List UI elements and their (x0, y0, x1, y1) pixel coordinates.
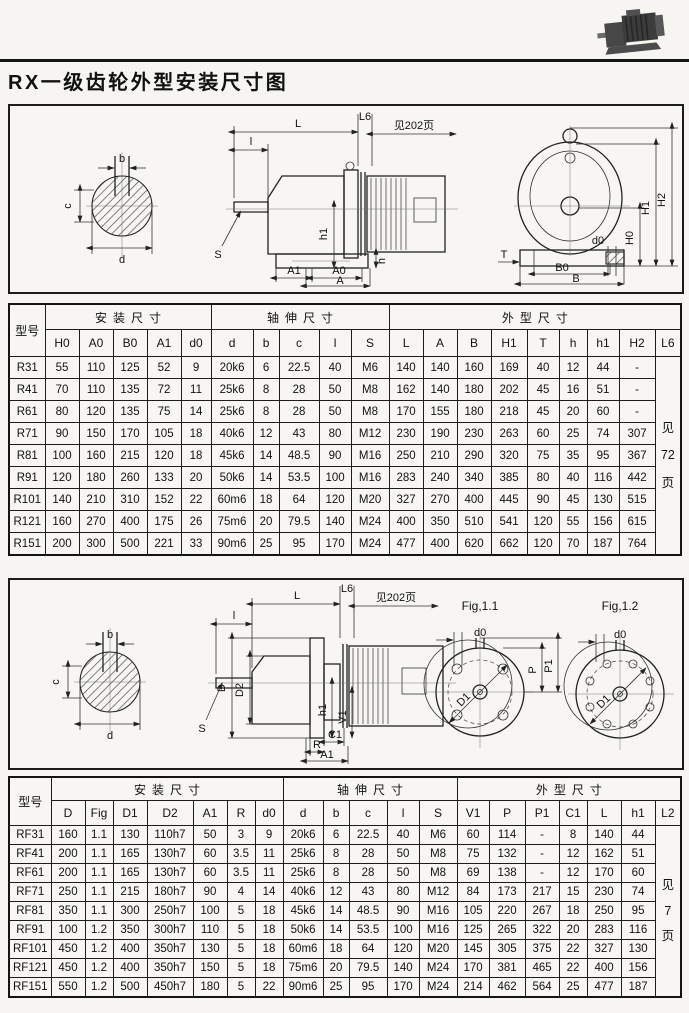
column-header: H1 (491, 330, 527, 357)
table-cell: 400 (423, 533, 457, 556)
table-cell: 6 (323, 826, 349, 845)
table-cell: 50k6 (283, 921, 323, 940)
table-row: R911201802601332050k61453.5100M162832403… (9, 467, 681, 489)
table-cell: 160 (45, 511, 79, 533)
table-cell: - (619, 357, 655, 379)
table-cell: 116 (621, 921, 655, 940)
table-cell: 217 (525, 883, 559, 902)
table-cell: 300 (79, 533, 113, 556)
table-cell: 162 (587, 845, 621, 864)
table-row: R1512003005002213390m62595170M2447740062… (9, 533, 681, 556)
table-cell: 11 (255, 845, 283, 864)
table-cell: 500 (113, 978, 147, 998)
table-cell: M8 (419, 864, 457, 883)
table-row: R315511012552920k6622.540M61401401601694… (9, 357, 681, 379)
table-cell: 1.1 (85, 826, 113, 845)
table-cell: 60 (193, 845, 227, 864)
column-header: D1 (113, 801, 147, 826)
column-group-header: 轴伸尺寸 (211, 304, 389, 330)
table-cell: 340 (457, 467, 491, 489)
table-cell: 50 (387, 845, 419, 864)
model-column-header: 型号 (9, 304, 45, 357)
dim-label-D2: D2 (234, 683, 246, 697)
table-row: R4170110135721125k682850M816214018020245… (9, 379, 681, 401)
table-cell: 1.2 (85, 978, 113, 998)
dim-label-B: B (572, 273, 579, 285)
table-cell: 400 (113, 511, 147, 533)
table-cell: 375 (525, 940, 559, 959)
table-cell: 60 (621, 864, 655, 883)
table-cell: 12 (559, 845, 587, 864)
table-cell: 11 (255, 864, 283, 883)
table-cell: 1.2 (85, 921, 113, 940)
table-cell: 564 (525, 978, 559, 998)
table-cell: 170 (389, 401, 423, 423)
table-cell: 100 (387, 921, 419, 940)
table-cell: 79.5 (349, 959, 387, 978)
table-cell: 60m6 (283, 940, 323, 959)
model-cell: RF81 (9, 902, 51, 921)
note-char: 页 (662, 930, 675, 943)
table-cell: 320 (491, 445, 527, 467)
table-cell: 11 (181, 379, 211, 401)
dim-label-P1: P1 (543, 659, 555, 672)
table-cell: 130h7 (147, 845, 193, 864)
table-cell: 64 (349, 940, 387, 959)
column-header: D (51, 801, 85, 826)
table-cell: 16 (559, 379, 587, 401)
table-cell: 260 (113, 467, 147, 489)
table-cell: 150 (79, 423, 113, 445)
table-cell: 215 (113, 883, 147, 902)
table-cell: 150 (193, 959, 227, 978)
table-cell: 175 (147, 511, 181, 533)
table-cell: 18 (181, 445, 211, 467)
table-row: R6180120135751425k682850M817015518021845… (9, 401, 681, 423)
table-cell: 620 (457, 533, 491, 556)
table-row: RF412001.1165130h7603.51125k682850M87513… (9, 845, 681, 864)
column-header: P (489, 801, 525, 826)
column-header: L2 (655, 801, 681, 826)
table-cell: M8 (351, 379, 389, 401)
table-cell: M6 (419, 826, 457, 845)
table-cell: 140 (45, 489, 79, 511)
table-cell: 25 (323, 978, 349, 998)
table-cell: 125 (113, 357, 147, 379)
table-cell: 200 (51, 864, 85, 883)
see-page-202-note: 见202页 (376, 592, 416, 604)
table-cell: 350 (423, 511, 457, 533)
dim-label-L6: L6 (359, 111, 371, 123)
column-group-header: 安装尺寸 (45, 304, 211, 330)
table-row: RF911001.2350300h711051850k61453.5100M16… (9, 921, 681, 940)
table-cell: 120 (527, 533, 559, 556)
table-row: RF1014501.2400350h713051860m61864120M201… (9, 940, 681, 959)
table-cell: 385 (491, 467, 527, 489)
table-cell: 75m6 (283, 959, 323, 978)
table-cell: 6 (253, 357, 279, 379)
table-cell: 20 (323, 959, 349, 978)
column-header: b (323, 801, 349, 826)
table-cell: 180 (457, 379, 491, 401)
column-header: c (349, 801, 387, 826)
table-cell: 75m6 (211, 511, 253, 533)
table-cell: 51 (621, 845, 655, 864)
table-cell: 120 (45, 467, 79, 489)
table-cell: 90m6 (283, 978, 323, 998)
table-cell: 305 (489, 940, 525, 959)
table-cell: 110h7 (147, 826, 193, 845)
table-cell: 75 (527, 445, 559, 467)
column-header: T (527, 330, 559, 357)
column-group-header: 轴伸尺寸 (283, 777, 457, 801)
table-cell: M20 (419, 940, 457, 959)
column-header: H0 (45, 330, 79, 357)
column-header: d (283, 801, 323, 826)
table-cell: 400 (457, 489, 491, 511)
table-cell: 130 (193, 940, 227, 959)
see-page-note-cell: 见7页 (655, 826, 681, 998)
table-cell: 322 (525, 921, 559, 940)
table-cell: 18 (323, 940, 349, 959)
table-cell: 25k6 (283, 845, 323, 864)
fig-1-2-view: Fig,1.2 d0 D1 (564, 599, 674, 750)
table-cell: 60 (587, 401, 619, 423)
table-row: RF612001.1165130h7603.51125k682850M86913… (9, 864, 681, 883)
table-cell: 442 (619, 467, 655, 489)
table-cell: 43 (349, 883, 387, 902)
model-cell: R31 (9, 357, 45, 379)
table-cell: 202 (491, 379, 527, 401)
table-cell: 22.5 (279, 357, 319, 379)
dim-label-d0: d0 (474, 627, 486, 639)
dim-label-H2: H2 (656, 193, 668, 207)
column-header: H2 (619, 330, 655, 357)
table-cell: 100 (45, 445, 79, 467)
table-cell: 60 (527, 423, 559, 445)
column-header: R (227, 801, 255, 826)
table-cell: - (619, 379, 655, 401)
table-cell: 367 (619, 445, 655, 467)
table-cell: 90m6 (211, 533, 253, 556)
table-cell: 20k6 (283, 826, 323, 845)
table-cell: 1.2 (85, 940, 113, 959)
table-cell: 310 (113, 489, 147, 511)
table-cell: 462 (489, 978, 525, 998)
table-cell: 450 (51, 940, 85, 959)
see-page-note-cell: 见72页 (655, 357, 681, 556)
dim-label-L: L (295, 118, 301, 130)
table-cell: 477 (389, 533, 423, 556)
table-cell: 5 (227, 921, 255, 940)
column-header: A (423, 330, 457, 357)
table-cell: 5 (227, 902, 255, 921)
table-cell: 43 (279, 423, 319, 445)
table-cell: 72 (147, 379, 181, 401)
column-header: A1 (193, 801, 227, 826)
table-cell: 221 (147, 533, 181, 556)
table-cell: 500 (113, 533, 147, 556)
dim-label-l: l (250, 136, 252, 148)
table-cell: 132 (489, 845, 525, 864)
table-cell: 22 (181, 489, 211, 511)
table-cell: 662 (491, 533, 527, 556)
table-cell: 50 (193, 826, 227, 845)
table-cell: 22 (559, 940, 587, 959)
table-cell: 4 (227, 883, 255, 902)
dim-label-C1: C1 (328, 729, 342, 741)
table-cell: M12 (351, 423, 389, 445)
table-cell: 52 (147, 357, 181, 379)
table-cell: 40 (387, 826, 419, 845)
model-cell: R91 (9, 467, 45, 489)
table-cell: 160 (457, 357, 491, 379)
table-cell: 50 (319, 379, 351, 401)
dim-label-d: d (107, 730, 113, 742)
table-cell: 14 (323, 921, 349, 940)
shaft-section-view: b c d (50, 628, 146, 742)
table-cell: 133 (147, 467, 181, 489)
table-cell: 400 (113, 959, 147, 978)
table-cell: 230 (389, 423, 423, 445)
table-cell: 400 (587, 959, 621, 978)
table-cell: 33 (181, 533, 211, 556)
table-cell: 300h7 (147, 921, 193, 940)
table-cell: 1.2 (85, 959, 113, 978)
column-group-header: 外型尺寸 (389, 304, 681, 330)
table-cell: 120 (319, 489, 351, 511)
table-cell: 105 (457, 902, 489, 921)
table-cell: M24 (419, 959, 457, 978)
table-cell: 3.5 (227, 864, 255, 883)
table-cell: 8 (323, 845, 349, 864)
table-cell: - (525, 864, 559, 883)
table-cell: 110 (79, 357, 113, 379)
table-cell: 100 (51, 921, 85, 940)
table-cell: 9 (255, 826, 283, 845)
table-cell: 130h7 (147, 864, 193, 883)
table-cell: 220 (489, 902, 525, 921)
table-cell: 140 (423, 357, 457, 379)
column-header: d0 (181, 330, 211, 357)
column-header: B (457, 330, 491, 357)
table-cell: 327 (587, 940, 621, 959)
table-cell: 60m6 (211, 489, 253, 511)
column-group-header: 安装尺寸 (51, 777, 283, 801)
table-cell: 95 (621, 902, 655, 921)
table-cell: 450 (51, 959, 85, 978)
table-cell: 40k6 (211, 423, 253, 445)
table-cell: 327 (389, 489, 423, 511)
column-header: h (559, 330, 587, 357)
table-cell: 14 (253, 445, 279, 467)
model-cell: R121 (9, 511, 45, 533)
table-cell: 75 (147, 401, 181, 423)
table-cell: 110 (79, 379, 113, 401)
table-cell: 138 (489, 864, 525, 883)
diagram-rf-series: b c d l L L6 见202页 D (8, 578, 684, 770)
table-cell: 79.5 (279, 511, 319, 533)
table-row: RF1214501.2400350h715051875m62079.5140M2… (9, 959, 681, 978)
table-cell: 170 (319, 533, 351, 556)
table-cell: 28 (349, 864, 387, 883)
table-cell: 48.5 (349, 902, 387, 921)
table-cell: 53.5 (349, 921, 387, 940)
table-cell: 90 (193, 883, 227, 902)
dim-label-H0: H0 (624, 231, 636, 245)
column-header: h1 (621, 801, 655, 826)
dim-label-A: A (336, 275, 344, 287)
dim-label-L: L (294, 590, 300, 602)
r-series-table: 型号安装尺寸轴伸尺寸外型尺寸H0A0B0A1d0dbclSLABH1Thh1H2… (8, 303, 682, 556)
table-cell: M24 (351, 511, 389, 533)
model-cell: R81 (9, 445, 45, 467)
table-cell: 510 (457, 511, 491, 533)
table-cell: 70 (559, 533, 587, 556)
column-header: c (279, 330, 319, 357)
table-cell: 307 (619, 423, 655, 445)
table-cell: 541 (491, 511, 527, 533)
column-header: l (387, 801, 419, 826)
side-view: l L L6 见202页 D D2 h1 V1 S C1 R A1 (198, 583, 456, 764)
table-cell: M12 (419, 883, 457, 902)
table-cell: 267 (525, 902, 559, 921)
dim-label-d0: d0 (614, 629, 626, 641)
model-column-header: 型号 (9, 777, 51, 826)
column-group-header: 外型尺寸 (457, 777, 681, 801)
table-cell: 477 (587, 978, 621, 998)
table-cell: 84 (457, 883, 489, 902)
table-cell: 283 (389, 467, 423, 489)
table-cell: 18 (255, 959, 283, 978)
table-cell: 90 (387, 902, 419, 921)
note-char: 72 (661, 449, 675, 462)
table-cell: 210 (423, 445, 457, 467)
diagram-r-series: b c d L l L6 见202页 h1 (8, 104, 684, 294)
table-cell: 44 (587, 357, 619, 379)
table-cell: 20 (559, 401, 587, 423)
fig-1-1-title: Fig,1.1 (462, 599, 499, 613)
dim-label-B0: B0 (555, 262, 568, 274)
table-cell: 20 (181, 467, 211, 489)
table-cell: 190 (423, 423, 457, 445)
table-cell: 75 (457, 845, 489, 864)
dim-label-P: P (527, 666, 539, 673)
table-cell: - (525, 845, 559, 864)
table-cell: 45k6 (211, 445, 253, 467)
table-cell: M20 (351, 489, 389, 511)
page-title: RX一级齿轮外型安装尺寸图 (8, 66, 288, 95)
table-row: R811001602151201845k61448.590M1625021029… (9, 445, 681, 467)
rf-series-drawing: b c d l L L6 见202页 D (10, 580, 682, 764)
table-cell: 51 (587, 379, 619, 401)
table-cell: 35 (559, 445, 587, 467)
dim-label-d: d (119, 254, 125, 266)
table-cell: 250 (51, 883, 85, 902)
column-header: S (351, 330, 389, 357)
table-cell: 180 (79, 467, 113, 489)
table-cell: 53.5 (279, 467, 319, 489)
table-cell: - (619, 401, 655, 423)
note-char: 见 (662, 879, 675, 892)
fig-1-1-view: Fig,1.1 d0 P P1 D1 (424, 599, 562, 748)
column-header: A1 (147, 330, 181, 357)
table-cell: 70 (45, 379, 79, 401)
table-cell: 350h7 (147, 959, 193, 978)
table-cell: 300 (113, 902, 147, 921)
table-cell: 55 (45, 357, 79, 379)
model-cell: R41 (9, 379, 45, 401)
table-cell: 240 (423, 467, 457, 489)
shaft-section-view: b c d (62, 152, 158, 266)
table-cell: 250h7 (147, 902, 193, 921)
column-header: l (319, 330, 351, 357)
table-cell: 45 (559, 489, 587, 511)
table-cell: 74 (587, 423, 619, 445)
note-char: 7 (664, 905, 671, 918)
table-cell: 152 (147, 489, 181, 511)
dim-label-A1: A1 (287, 265, 300, 277)
table-cell: 130 (113, 826, 147, 845)
dim-label-l: l (233, 610, 235, 622)
dim-label-D1: D1 (455, 691, 473, 709)
table-cell: 18 (559, 902, 587, 921)
table-cell: 3 (227, 826, 255, 845)
table-cell: 74 (621, 883, 655, 902)
table-cell: 95 (587, 445, 619, 467)
table-cell: 230 (587, 883, 621, 902)
table-cell: 45 (527, 401, 559, 423)
table-cell: 95 (279, 533, 319, 556)
table-cell: 12 (253, 423, 279, 445)
table-cell: 165 (113, 864, 147, 883)
table-cell: 80 (45, 401, 79, 423)
table-cell: 140 (389, 357, 423, 379)
table-cell: 25 (559, 423, 587, 445)
dim-label-D: D (216, 684, 228, 692)
table-cell: 145 (457, 940, 489, 959)
table-cell: 180 (457, 401, 491, 423)
model-cell: RF101 (9, 940, 51, 959)
table-cell: 14 (255, 883, 283, 902)
table-cell: 120 (79, 401, 113, 423)
table-cell: 18 (255, 902, 283, 921)
column-header: d0 (255, 801, 283, 826)
table-cell: 12 (323, 883, 349, 902)
model-cell: R151 (9, 533, 45, 556)
table-cell: M16 (419, 921, 457, 940)
table-cell: M24 (351, 533, 389, 556)
table-cell: 14 (323, 902, 349, 921)
dim-label-S: S (198, 723, 205, 735)
table-cell: 156 (587, 511, 619, 533)
column-header: L6 (655, 330, 681, 357)
table-cell: 114 (489, 826, 525, 845)
model-cell: RF121 (9, 959, 51, 978)
table-cell: 764 (619, 533, 655, 556)
table-cell: 40 (559, 467, 587, 489)
table-cell: 169 (491, 357, 527, 379)
table-cell: M16 (351, 445, 389, 467)
table-cell: M24 (419, 978, 457, 998)
dim-label-A1: A1 (320, 749, 333, 761)
table-cell: 160 (51, 826, 85, 845)
table-cell: 170 (113, 423, 147, 445)
table-cell: 290 (457, 445, 491, 467)
table-cell: 18 (255, 921, 283, 940)
dim-label-c: c (62, 203, 74, 209)
table-cell: 130 (621, 940, 655, 959)
